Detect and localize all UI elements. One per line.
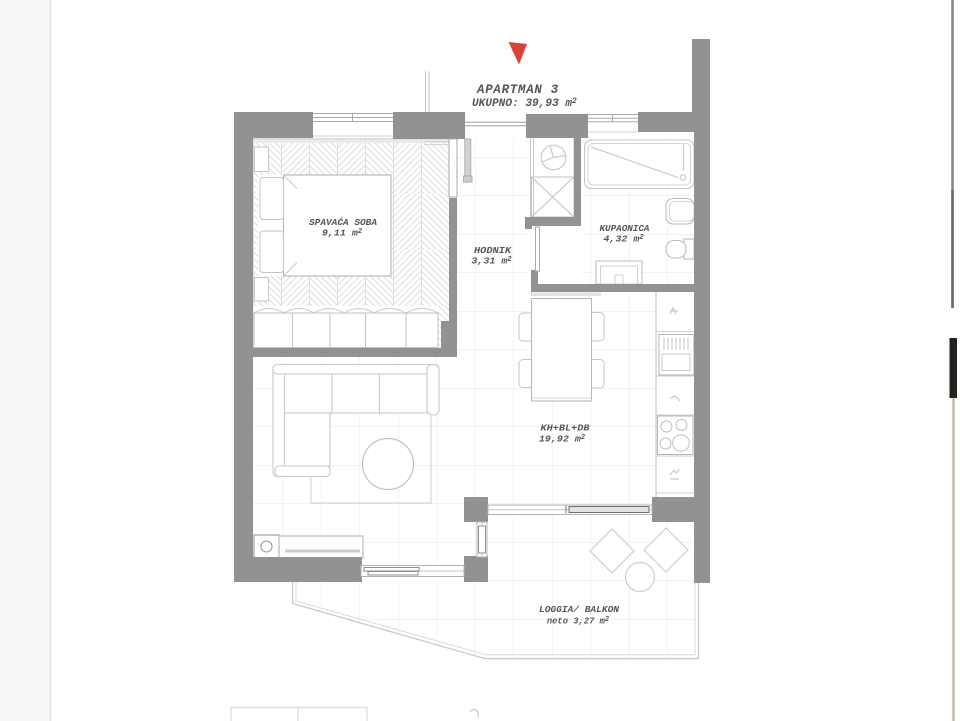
svg-text:3,31 m2: 3,31 m2	[471, 256, 512, 267]
svg-text:19,92 m2: 19,92 m2	[539, 434, 586, 445]
svg-text:SPAVAĆA SOBA: SPAVAĆA SOBA	[309, 217, 377, 228]
svg-text:4,32 m2: 4,32 m2	[603, 234, 644, 245]
svg-text:9,11 m2: 9,11 m2	[322, 228, 363, 239]
svg-text:APARTMAN 3: APARTMAN 3	[476, 82, 559, 97]
svg-text:neto 3,27 m2: neto 3,27 m2	[547, 616, 610, 627]
svg-text:UKUPNO: 39,93 m2: UKUPNO: 39,93 m2	[472, 97, 577, 110]
svg-text:LOGGIA/ BALKON: LOGGIA/ BALKON	[539, 604, 619, 615]
svg-text:KH+BL+DB: KH+BL+DB	[541, 423, 590, 434]
svg-text:HODNIK: HODNIK	[474, 245, 512, 256]
svg-text:KUPAONICA: KUPAONICA	[600, 223, 650, 234]
